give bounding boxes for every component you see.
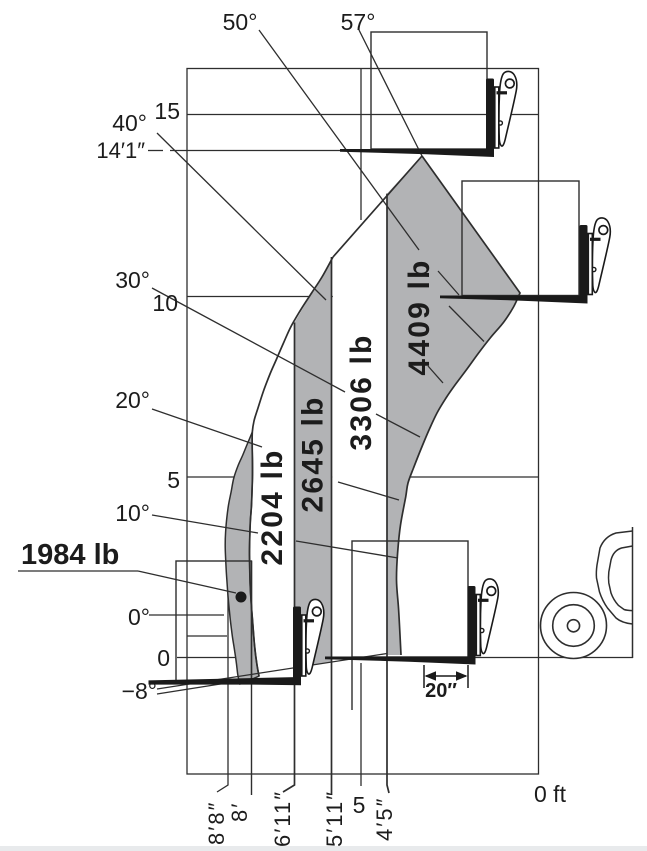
- svg-text:50°: 50°: [223, 9, 258, 35]
- svg-text:1984 lb: 1984 lb: [21, 539, 119, 571]
- svg-text:15: 15: [154, 98, 180, 124]
- svg-text:2204 lb: 2204 lb: [256, 448, 289, 565]
- svg-text:57°: 57°: [341, 9, 376, 35]
- svg-text:5: 5: [167, 467, 180, 493]
- svg-text:14′1″: 14′1″: [96, 138, 145, 163]
- svg-text:20″: 20″: [425, 680, 457, 702]
- svg-text:0: 0: [157, 645, 170, 671]
- svg-text:5′11″: 5′11″: [322, 790, 347, 847]
- svg-text:4′5″: 4′5″: [372, 797, 397, 841]
- svg-text:40°: 40°: [112, 110, 147, 136]
- svg-text:20°: 20°: [115, 387, 150, 413]
- svg-text:8′8″: 8′8″: [204, 801, 229, 845]
- svg-text:3306 lb: 3306 lb: [345, 333, 378, 450]
- svg-text:30°: 30°: [115, 267, 150, 293]
- svg-text:2645 lb: 2645 lb: [297, 395, 330, 512]
- svg-text:10: 10: [152, 290, 178, 316]
- svg-text:0 ft: 0 ft: [534, 781, 567, 807]
- svg-text:0°: 0°: [128, 604, 150, 630]
- svg-text:10°: 10°: [115, 500, 150, 526]
- svg-text:−8°: −8°: [122, 678, 157, 704]
- svg-text:8′: 8′: [227, 802, 252, 822]
- svg-text:5: 5: [353, 792, 366, 818]
- svg-text:6′11″: 6′11″: [270, 790, 295, 847]
- svg-text:4409 lb: 4409 lb: [403, 258, 436, 375]
